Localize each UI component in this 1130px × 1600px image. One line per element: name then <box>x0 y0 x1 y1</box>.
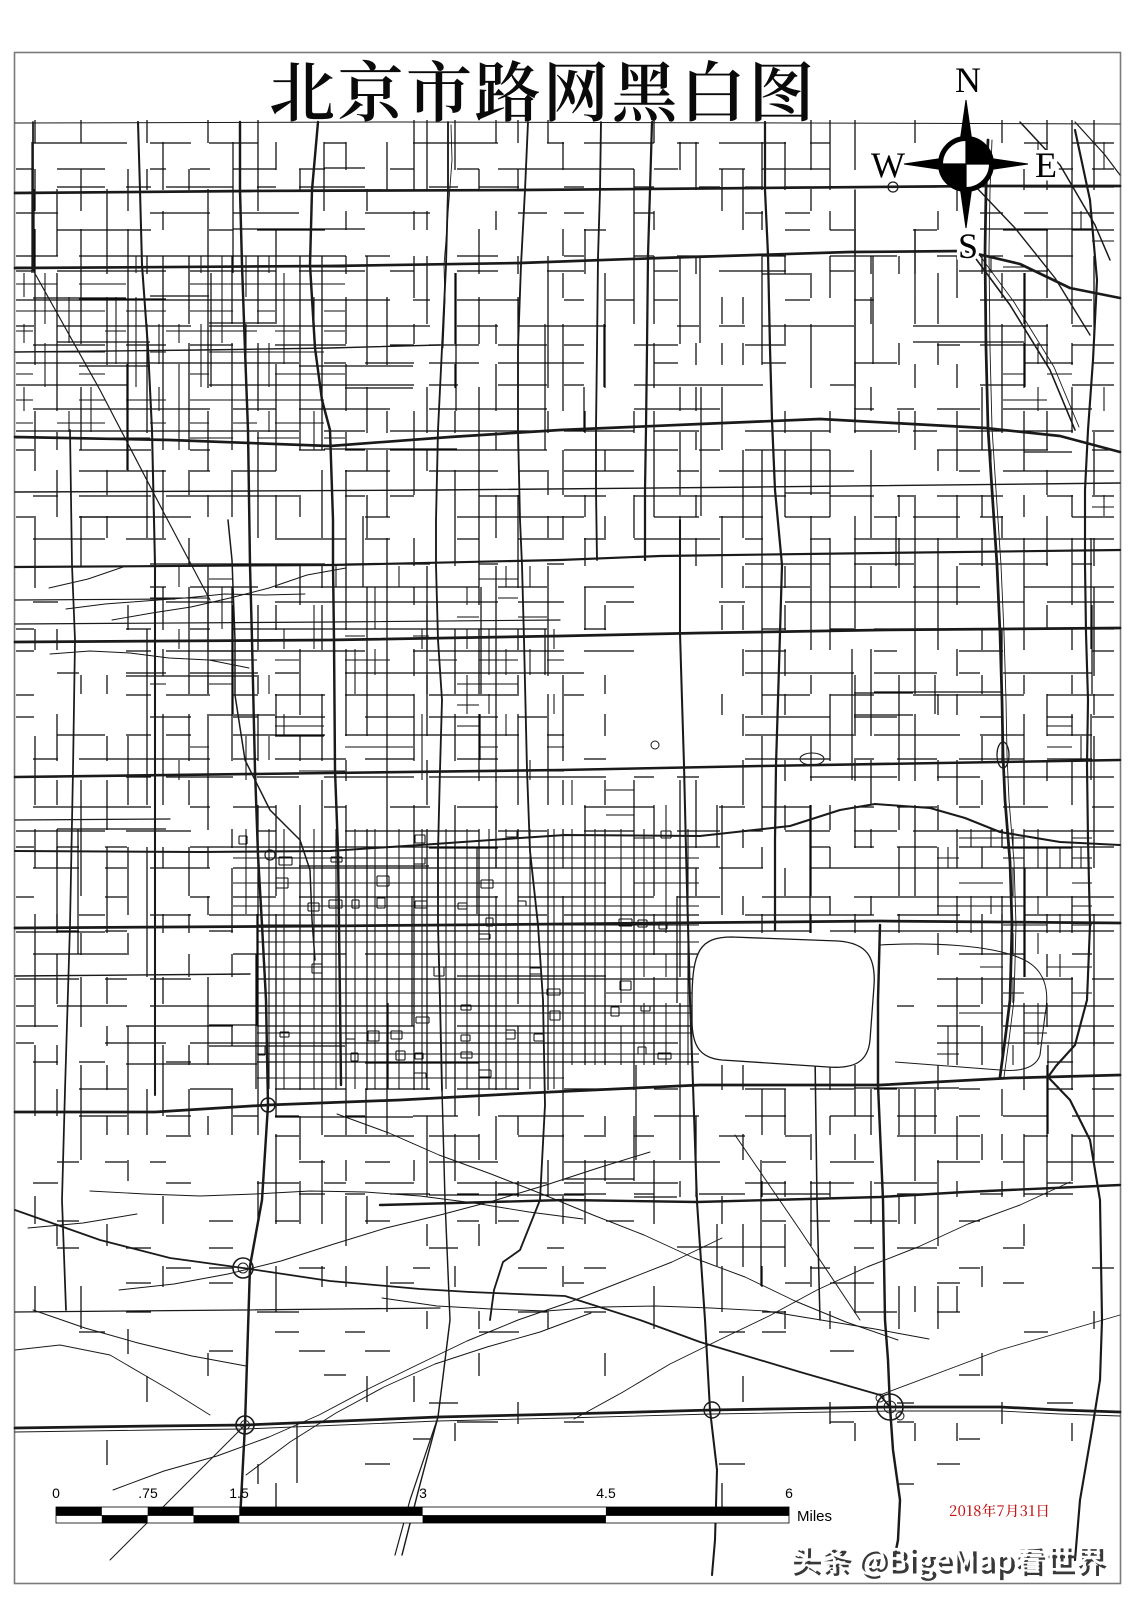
svg-text:4.5: 4.5 <box>596 1485 616 1501</box>
svg-text:E: E <box>1035 145 1057 185</box>
svg-text:N: N <box>955 60 981 100</box>
svg-text:0: 0 <box>52 1485 60 1501</box>
svg-text:1.5: 1.5 <box>229 1485 249 1501</box>
svg-text:W: W <box>871 145 905 185</box>
svg-text:3: 3 <box>419 1485 427 1501</box>
svg-text:.75: .75 <box>138 1485 158 1501</box>
svg-text:S: S <box>958 226 978 266</box>
svg-text:6: 6 <box>785 1485 793 1501</box>
svg-text:Miles: Miles <box>797 1508 832 1525</box>
